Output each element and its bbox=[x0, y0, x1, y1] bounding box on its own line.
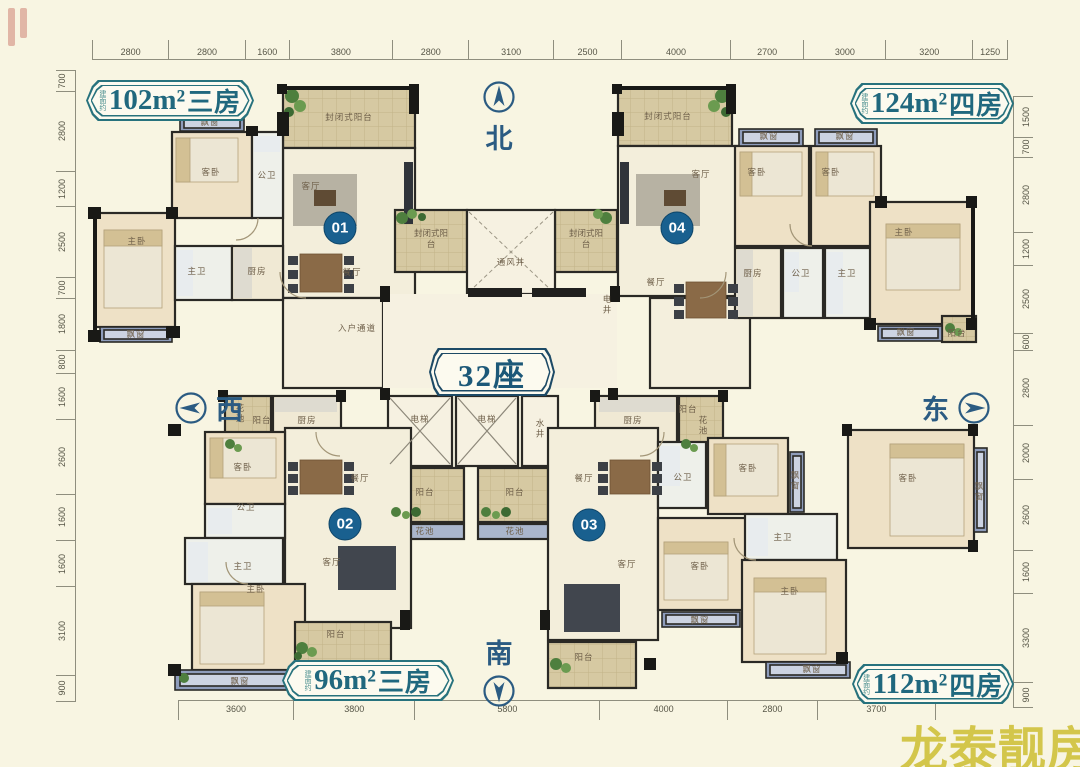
dimension-segment: 1600 bbox=[1013, 550, 1033, 594]
dimension-segment: 2800 bbox=[727, 700, 817, 720]
unit-marker-03: 03 bbox=[573, 509, 606, 542]
badge-prefix: 建面约 bbox=[99, 90, 106, 111]
dimension-segment: 1600 bbox=[56, 540, 76, 586]
dimension-segment: 3000 bbox=[803, 40, 885, 60]
dimension-segment: 3100 bbox=[468, 40, 552, 60]
dimension-segment: 1600 bbox=[245, 40, 289, 60]
badge-area: 96m² bbox=[314, 664, 376, 697]
dimension-segment: 2000 bbox=[1013, 425, 1033, 479]
dimension-segment: 2800 bbox=[56, 91, 76, 171]
dimension-segment: 2700 bbox=[730, 40, 804, 60]
building-name-plate: 32座 bbox=[429, 348, 555, 396]
dimension-segment: 2800 bbox=[92, 40, 168, 60]
dimension-segment: 2800 bbox=[1013, 157, 1033, 233]
dimension-segment: 3100 bbox=[56, 586, 76, 674]
compass-north-label: 北 bbox=[486, 117, 513, 156]
badge-rooms: 三房 bbox=[378, 662, 432, 699]
area-badge-bottom-right: 建面约 112m² 四房 bbox=[852, 664, 1014, 704]
dimension-segment: 4000 bbox=[599, 700, 727, 720]
badge-prefix: 建面约 bbox=[861, 93, 868, 114]
dimension-segment: 2800 bbox=[1013, 350, 1033, 426]
watermark: 龙泰靓房 bbox=[900, 710, 1080, 767]
dimension-strip-bottom: 360038005800400028003700 bbox=[178, 700, 936, 720]
badge-prefix: 建面约 bbox=[863, 674, 870, 695]
dimension-segment: 2500 bbox=[1013, 265, 1033, 333]
dimension-segment: 2600 bbox=[1013, 479, 1033, 549]
dimension-segment: 4000 bbox=[621, 40, 730, 60]
area-badge-top-left: 建面约 102m² 三房 bbox=[86, 80, 254, 121]
compass-north: 北 bbox=[482, 80, 516, 156]
floor-plan-page: 封闭式阳台客厅飘窗客卧公卫主卧主卫厨房餐厅飘窗入户通道封闭式阳台封闭式阳台通风井… bbox=[0, 0, 1080, 767]
compass-south-icon bbox=[482, 674, 516, 708]
dimension-segment: 2500 bbox=[553, 40, 621, 60]
dimension-strip-top: 2800280016003800280031002500400027003000… bbox=[92, 40, 1008, 60]
compass-east-icon bbox=[957, 391, 991, 425]
dimension-segment: 2600 bbox=[56, 419, 76, 493]
dimension-segment: 2800 bbox=[392, 40, 468, 60]
compass-west-label: 西 bbox=[216, 388, 243, 427]
dimension-segment: 1600 bbox=[56, 494, 76, 540]
dimension-strip-left: 7002800120025007001800800160026001600160… bbox=[56, 70, 76, 702]
dimension-segment: 1200 bbox=[1013, 232, 1033, 265]
dimension-segment: 2500 bbox=[56, 206, 76, 278]
dimension-segment: 700 bbox=[56, 277, 76, 298]
compass-south: 南 bbox=[482, 632, 516, 708]
building-label: 32座 bbox=[458, 350, 526, 395]
unit-marker-04: 04 bbox=[661, 212, 694, 245]
badge-prefix: 建面约 bbox=[304, 670, 311, 691]
unit-marker-02: 02 bbox=[329, 508, 362, 541]
dimension-segment: 3800 bbox=[289, 40, 392, 60]
area-badge-top-right: 建面约 124m² 四房 bbox=[850, 83, 1014, 124]
dimension-segment: 3300 bbox=[1013, 593, 1033, 682]
badge-area: 112m² bbox=[873, 668, 948, 701]
corner-stamp bbox=[8, 8, 34, 46]
dimension-segment: 2800 bbox=[168, 40, 244, 60]
compass-east-label: 东 bbox=[922, 388, 949, 427]
dimension-segment: 3800 bbox=[293, 700, 414, 720]
dimension-segment: 1200 bbox=[56, 171, 76, 206]
badge-rooms: 四房 bbox=[949, 666, 1003, 703]
dimension-segment: 900 bbox=[1013, 682, 1033, 708]
dimension-segment: 3600 bbox=[178, 700, 293, 720]
dimension-segment: 3200 bbox=[885, 40, 972, 60]
dimension-segment: 800 bbox=[56, 350, 76, 374]
dimension-strip-right: 1500700280012002500600280020002600160033… bbox=[1013, 96, 1033, 708]
unit-marker-01: 01 bbox=[324, 212, 357, 245]
dimension-segment: 900 bbox=[56, 675, 76, 702]
badge-area: 124m² bbox=[871, 87, 947, 120]
dimension-segment: 1600 bbox=[56, 373, 76, 419]
dimension-segment: 600 bbox=[1013, 333, 1033, 350]
badge-rooms: 三房 bbox=[187, 82, 241, 119]
dimension-segment: 1800 bbox=[56, 298, 76, 350]
compass-west: 西 bbox=[174, 388, 243, 427]
dimension-segment: 1250 bbox=[972, 40, 1008, 60]
dimension-segment: 700 bbox=[1013, 137, 1033, 157]
badge-rooms: 四房 bbox=[949, 85, 1003, 122]
compass-west-icon bbox=[174, 391, 208, 425]
dimension-segment: 1500 bbox=[1013, 96, 1033, 137]
area-badge-bottom-left: 建面约 96m² 三房 bbox=[282, 660, 454, 701]
compass-north-icon bbox=[482, 80, 516, 114]
compass-east: 东 bbox=[922, 388, 991, 427]
compass-south-label: 南 bbox=[486, 632, 513, 671]
dimension-segment: 700 bbox=[56, 70, 76, 91]
badge-area: 102m² bbox=[109, 84, 185, 117]
